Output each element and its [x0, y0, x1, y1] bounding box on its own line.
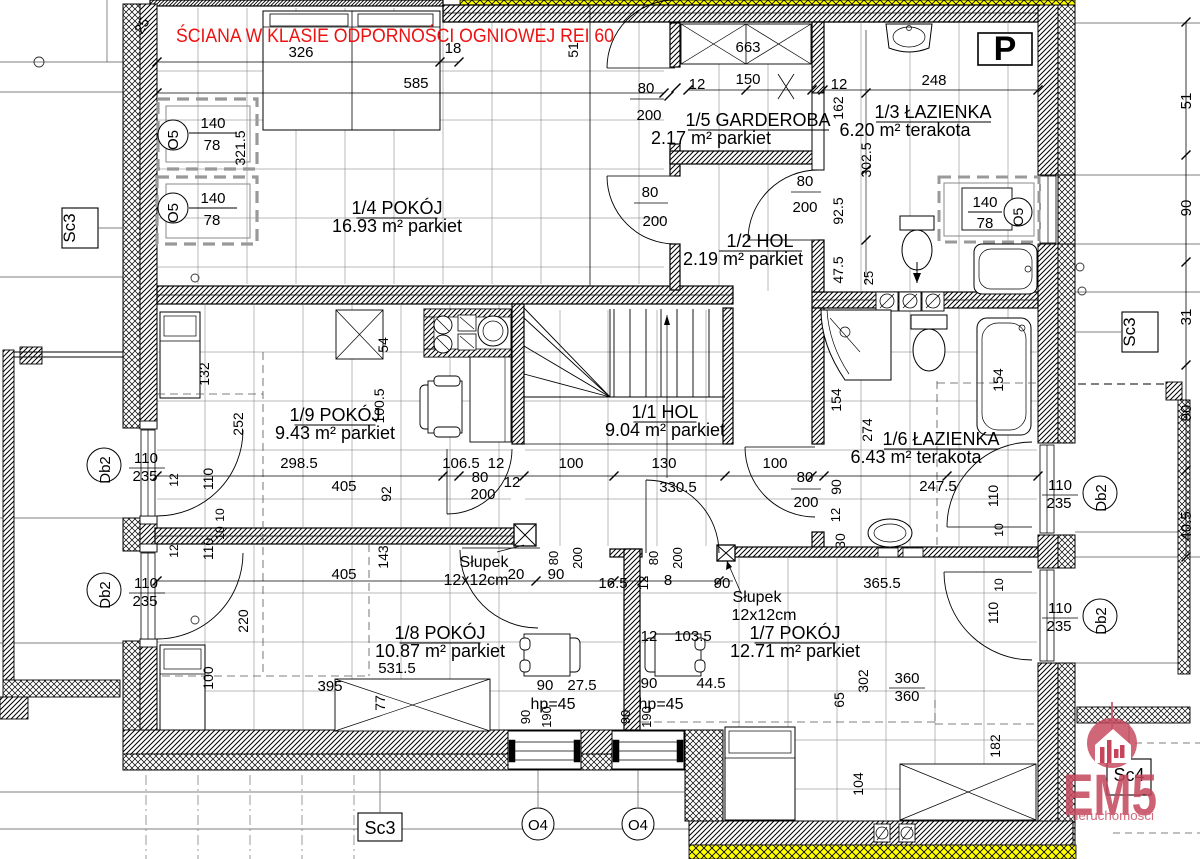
svg-text:18: 18: [445, 40, 462, 57]
svg-text:10: 10: [213, 526, 227, 540]
svg-text:Słupek: Słupek: [460, 554, 510, 571]
svg-text:12x12cm: 12x12cm: [732, 607, 797, 624]
svg-text:O5: O5: [1010, 207, 1026, 226]
svg-text:10: 10: [992, 578, 1006, 592]
svg-text:235: 235: [1046, 495, 1071, 512]
svg-text:405: 405: [331, 566, 356, 583]
svg-text:110: 110: [985, 485, 1001, 508]
svg-text:80: 80: [546, 551, 561, 565]
svg-text:130: 130: [651, 455, 676, 472]
svg-text:220: 220: [235, 609, 251, 633]
svg-text:O4: O4: [528, 817, 548, 834]
svg-text:47.5: 47.5: [830, 256, 846, 283]
svg-text:200: 200: [793, 494, 818, 511]
svg-text:12: 12: [689, 76, 706, 93]
svg-text:321.5: 321.5: [232, 130, 248, 165]
svg-text:330.5: 330.5: [659, 479, 697, 496]
svg-text:235: 235: [1046, 618, 1071, 635]
svg-text:90: 90: [548, 566, 565, 583]
svg-text:110: 110: [1048, 477, 1072, 494]
svg-text:1/6 ŁAZIENKA: 1/6 ŁAZIENKA: [882, 429, 999, 449]
svg-text:78: 78: [204, 137, 221, 154]
svg-text:80: 80: [797, 469, 814, 486]
svg-text:12.71 m² parkiet: 12.71 m² parkiet: [730, 641, 860, 661]
svg-text:90: 90: [1178, 405, 1195, 422]
svg-text:132: 132: [196, 362, 212, 386]
svg-text:302: 302: [855, 669, 871, 693]
svg-text:200: 200: [570, 547, 585, 569]
svg-text:274: 274: [859, 418, 875, 442]
svg-text:80: 80: [646, 551, 661, 565]
svg-text:12: 12: [831, 76, 848, 93]
svg-text:25: 25: [861, 271, 876, 285]
svg-text:1/1 HOL: 1/1 HOL: [631, 402, 698, 422]
svg-text:585: 585: [403, 75, 428, 92]
svg-text:nieruchomości: nieruchomości: [1068, 808, 1154, 823]
svg-text:51: 51: [565, 42, 581, 58]
svg-text:104: 104: [850, 772, 866, 796]
svg-text:51: 51: [1178, 93, 1195, 110]
svg-text:Db2: Db2: [1093, 607, 1110, 635]
svg-text:200: 200: [670, 547, 685, 569]
svg-text:10: 10: [992, 523, 1006, 537]
svg-text:248: 248: [921, 72, 946, 89]
svg-text:90: 90: [1178, 200, 1195, 217]
svg-text:100.5: 100.5: [371, 388, 387, 423]
svg-text:252: 252: [230, 412, 246, 436]
svg-text:O5: O5: [165, 203, 182, 223]
svg-text:12: 12: [167, 544, 181, 558]
svg-text:1/5 GARDEROBA: 1/5 GARDEROBA: [685, 110, 830, 130]
svg-text:162: 162: [830, 96, 846, 120]
svg-text:298.5: 298.5: [280, 455, 318, 472]
svg-text:110: 110: [200, 468, 216, 491]
svg-text:78: 78: [977, 215, 994, 232]
svg-text:10.87 m² parkiet: 10.87 m² parkiet: [375, 641, 505, 661]
svg-text:12x12cm: 12x12cm: [444, 572, 509, 589]
svg-text:140: 140: [972, 194, 997, 211]
svg-text:100: 100: [762, 455, 787, 472]
svg-text:9.43 m² parkiet: 9.43 m² parkiet: [275, 423, 395, 443]
svg-text:80: 80: [642, 184, 659, 201]
svg-text:12: 12: [488, 455, 505, 472]
svg-text:16.5: 16.5: [598, 575, 627, 592]
svg-text:12: 12: [828, 508, 843, 522]
svg-text:235: 235: [132, 468, 157, 485]
svg-text:90: 90: [537, 677, 554, 694]
svg-text:Db2: Db2: [97, 456, 114, 484]
svg-text:31: 31: [1178, 309, 1195, 326]
svg-text:103.5: 103.5: [674, 628, 712, 645]
svg-text:110: 110: [1048, 600, 1072, 617]
svg-text:10: 10: [213, 508, 227, 522]
svg-text:12: 12: [504, 474, 521, 491]
svg-text:92: 92: [378, 486, 394, 502]
svg-text:200: 200: [636, 107, 661, 124]
svg-text:360: 360: [894, 688, 919, 705]
svg-text:78: 78: [204, 212, 221, 229]
svg-text:ŚCIANA W KLASIE ODPORNOŚCI OGN: ŚCIANA W KLASIE ODPORNOŚCI OGNIOWEJ REI …: [176, 25, 614, 47]
svg-text:235: 235: [132, 593, 157, 610]
svg-text:80: 80: [472, 469, 489, 486]
svg-text:365.5: 365.5: [863, 575, 901, 592]
svg-text:531.5: 531.5: [378, 660, 416, 677]
svg-text:110: 110: [134, 450, 158, 467]
svg-text:1/8 POKÓJ: 1/8 POKÓJ: [394, 622, 485, 643]
svg-text:8: 8: [664, 572, 672, 589]
svg-text:Sc3: Sc3: [364, 818, 395, 838]
svg-text:90: 90: [518, 710, 533, 724]
svg-text:O5: O5: [165, 130, 182, 150]
svg-text:80: 80: [638, 80, 655, 97]
svg-text:190: 190: [639, 706, 654, 728]
svg-text:663: 663: [735, 39, 760, 56]
svg-text:154: 154: [990, 368, 1006, 392]
svg-text:77: 77: [372, 695, 388, 711]
svg-text:405: 405: [331, 478, 356, 495]
svg-text:1/2 HOL: 1/2 HOL: [726, 231, 793, 251]
svg-text:80: 80: [797, 173, 814, 190]
svg-text:Sc3: Sc3: [1120, 317, 1139, 346]
svg-text:200: 200: [792, 199, 817, 216]
svg-text:110: 110: [200, 538, 216, 561]
svg-text:6.43 m² terakota: 6.43 m² terakota: [850, 447, 982, 467]
svg-text:90: 90: [641, 675, 658, 692]
svg-text:Sc3: Sc3: [60, 213, 79, 242]
svg-text:2.19 m² parkiet: 2.19 m² parkiet: [683, 249, 803, 269]
svg-text:247.5: 247.5: [919, 478, 957, 495]
svg-text:100: 100: [558, 455, 583, 472]
svg-text:182: 182: [987, 734, 1003, 758]
svg-text:12: 12: [167, 473, 181, 487]
svg-text:12: 12: [641, 628, 658, 645]
svg-text:1/7 POKÓJ: 1/7 POKÓJ: [749, 622, 840, 643]
svg-text:90: 90: [618, 710, 633, 724]
svg-text:200: 200: [470, 486, 495, 503]
svg-text:40.5: 40.5: [1178, 511, 1195, 540]
svg-text:9.04 m² parkiet: 9.04 m² parkiet: [605, 420, 725, 440]
svg-text:44.5: 44.5: [696, 675, 725, 692]
svg-text:200: 200: [642, 213, 667, 230]
svg-text:12: 12: [636, 576, 651, 590]
svg-text:140: 140: [200, 190, 225, 207]
svg-text:150: 150: [735, 71, 760, 88]
svg-text:360: 360: [894, 670, 919, 687]
svg-text:Db2: Db2: [1093, 484, 1110, 512]
svg-text:16.93 m² parkiet: 16.93 m² parkiet: [332, 216, 462, 236]
svg-text:65: 65: [831, 692, 847, 708]
svg-text:395: 395: [317, 678, 342, 695]
svg-text:1/4 POKÓJ: 1/4 POKÓJ: [351, 197, 442, 218]
svg-text:2.17 m² parkiet: 2.17 m² parkiet: [651, 128, 771, 148]
svg-text:140: 140: [200, 115, 225, 132]
svg-text:30: 30: [832, 533, 848, 549]
svg-text:100: 100: [200, 666, 216, 690]
svg-text:P: P: [994, 30, 1017, 68]
svg-text:90: 90: [714, 575, 731, 592]
svg-text:92.5: 92.5: [830, 197, 846, 224]
svg-text:190: 190: [539, 706, 554, 728]
svg-text:1/3 ŁAZIENKA: 1/3 ŁAZIENKA: [874, 102, 991, 122]
svg-text:326: 326: [288, 44, 313, 61]
svg-text:110: 110: [985, 602, 1001, 625]
svg-text:27.5: 27.5: [567, 677, 596, 694]
svg-text:1/9 POKÓJ: 1/9 POKÓJ: [289, 404, 380, 425]
svg-text:154: 154: [828, 388, 844, 412]
svg-text:Db2: Db2: [97, 581, 114, 609]
svg-text:6.20 m² terakota: 6.20 m² terakota: [839, 120, 971, 140]
svg-text:54: 54: [375, 337, 391, 353]
svg-text:143: 143: [375, 545, 391, 569]
svg-text:O4: O4: [628, 817, 648, 834]
svg-text:20: 20: [508, 566, 525, 583]
svg-text:90: 90: [828, 479, 844, 495]
